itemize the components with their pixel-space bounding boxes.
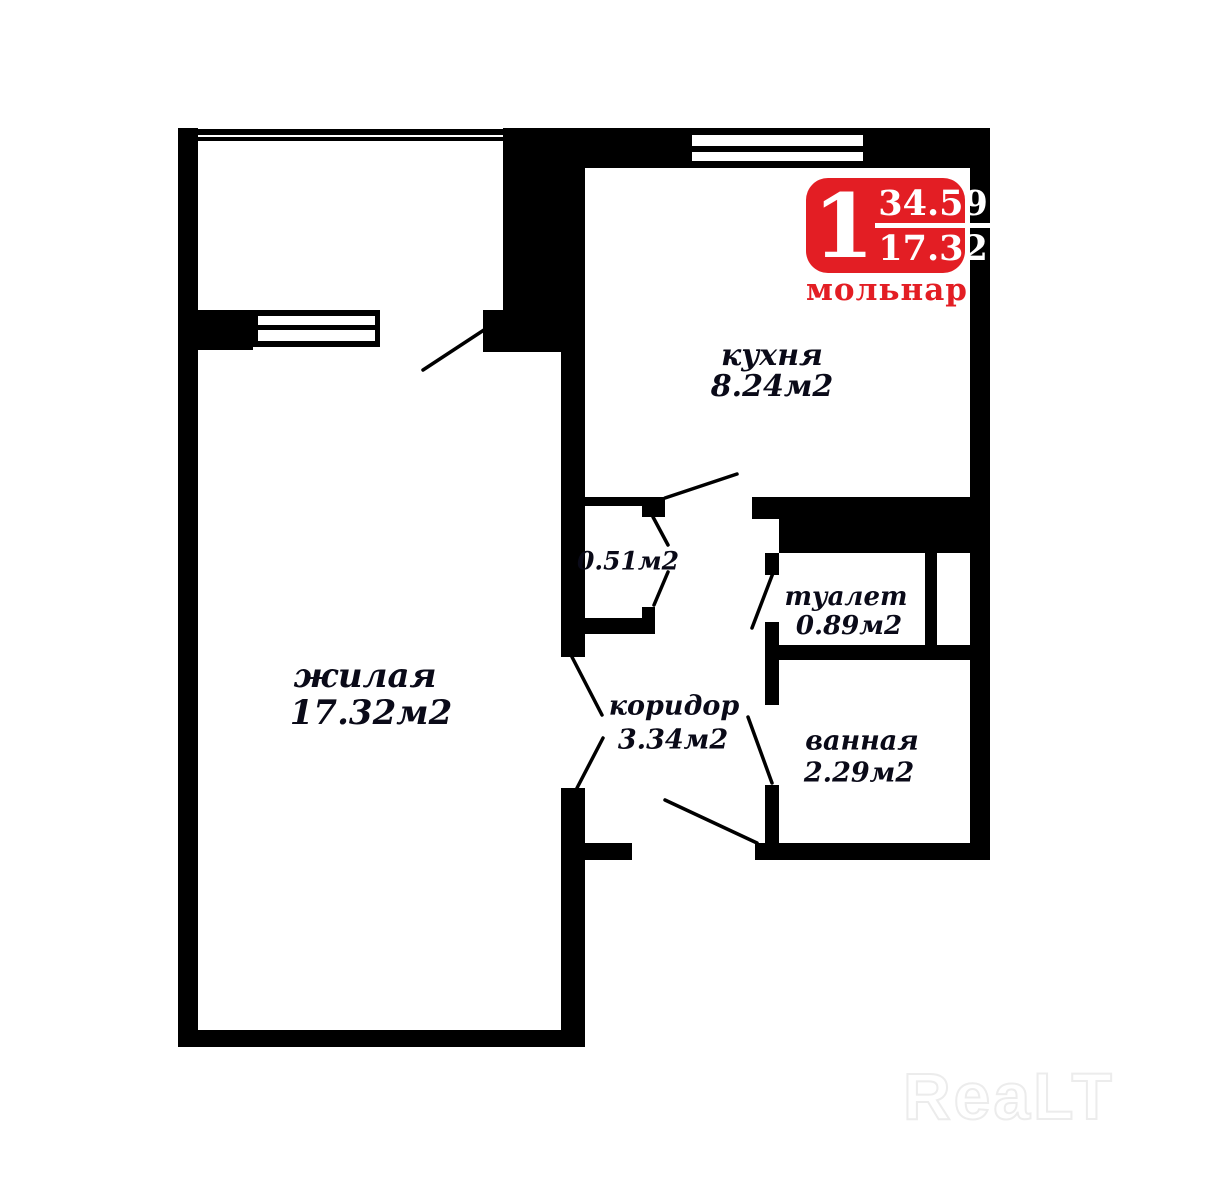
floorplan-canvas: жилая 17.32м2 кухня 8.24м2 коридор 3.34м… <box>0 0 1218 1183</box>
balcony-lower-wall-left <box>198 310 253 350</box>
badge-total-area: 34.59 <box>875 185 991 228</box>
room-label-toilet-area: 0.89м2 <box>796 613 902 639</box>
toilet-left-wall-lower <box>765 622 779 645</box>
room-label-kitchen-name: кухня <box>721 341 823 371</box>
floorplan-drawing <box>0 0 1218 1183</box>
balcony-lower-window-top <box>253 310 380 316</box>
bathroom-door-swing <box>748 717 772 783</box>
living-door-swing-lower <box>577 738 603 788</box>
balcony-door-swing <box>423 328 487 370</box>
balcony-window-top-line <box>198 129 503 135</box>
room-label-living-name: жилая <box>293 659 436 693</box>
wall-bottom-right <box>755 843 990 860</box>
balcony-lower-window-mid <box>253 325 380 330</box>
series-brand-label: мольнар <box>806 272 966 308</box>
balcony-window-bottom-line <box>198 137 503 141</box>
wall-toilet-bath <box>765 645 970 660</box>
kitchen-window-top-bar <box>692 128 863 135</box>
balcony-lower-window-left-frame <box>253 310 258 347</box>
entry-door-swing <box>665 800 757 843</box>
balcony-lower-window-right-frame <box>375 310 380 347</box>
room-label-bathroom-area: 2.29м2 <box>804 760 914 787</box>
badge-living-area: 17.32 <box>875 228 991 267</box>
room-label-closet-area: 0.51м2 <box>577 549 679 574</box>
room-label-living-area: 17.32м2 <box>290 696 452 730</box>
wall-kitchen-south <box>752 497 990 519</box>
closet-bottom-notch <box>642 607 655 618</box>
kitchen-door-swing <box>665 474 737 498</box>
living-door-swing-upper <box>572 657 602 715</box>
room-label-bathroom-name: ванная <box>805 728 919 755</box>
wall-bottom-living <box>178 1030 585 1047</box>
bath-left-wall-lower <box>765 785 779 843</box>
badge-areas-column: 34.59 17.32 <box>875 185 991 267</box>
room-label-kitchen-area: 8.24м2 <box>711 372 833 402</box>
closet-door-swing-lower <box>654 572 668 605</box>
wall-living-right-lower <box>561 788 585 1047</box>
wall-living-right-upper <box>561 352 585 657</box>
wall-toilet-top <box>779 519 990 553</box>
wall-left <box>178 128 198 1047</box>
room-label-corridor-area: 3.34м2 <box>618 727 728 754</box>
room-label-toilet-name: туалет <box>785 584 908 610</box>
kitchen-window-mid-bar <box>692 146 863 152</box>
closet-bottom-wall <box>585 618 655 634</box>
closet-top-notch <box>642 497 665 517</box>
area-badge: 1 34.59 17.32 <box>806 178 965 273</box>
toilet-duct-strip <box>925 553 937 645</box>
closet-door-swing-upper <box>653 517 668 545</box>
balcony-lower-wall-block <box>483 310 563 352</box>
kitchen-window-bottom-bar <box>692 161 863 168</box>
bath-left-wall-upper <box>765 660 779 705</box>
realt-watermark: ReaLT <box>903 1058 1115 1134</box>
balcony-lower-window-bottom <box>253 341 380 347</box>
toilet-door-swing <box>752 573 773 628</box>
entry-wall-stub <box>583 843 632 860</box>
room-label-corridor-name: коридор <box>609 693 739 720</box>
badge-rooms-count: 1 <box>813 181 874 271</box>
